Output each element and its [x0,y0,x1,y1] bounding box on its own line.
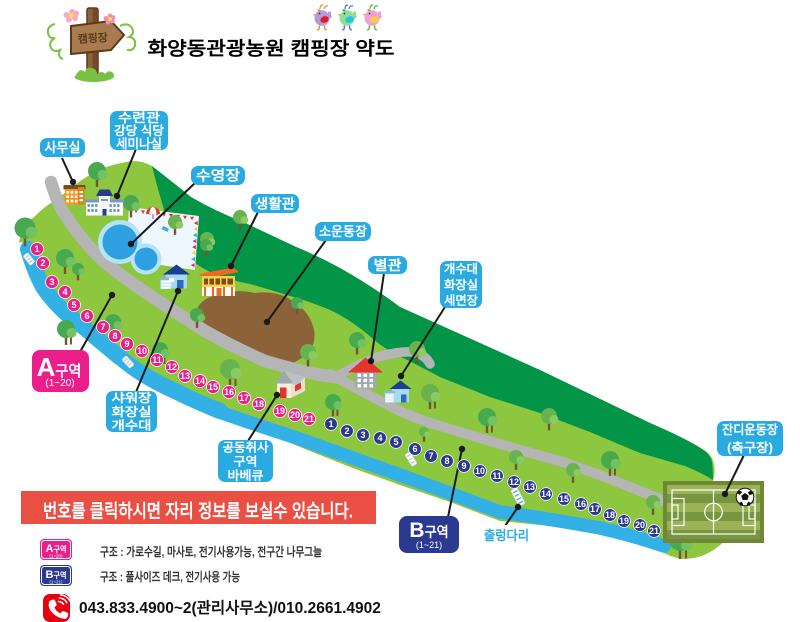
svg-text:(1~20): (1~20) [49,554,63,559]
svg-text:6: 6 [412,444,417,454]
svg-text:11: 11 [152,355,162,365]
svg-text:별관: 별관 [374,257,403,273]
svg-text:4: 4 [62,287,67,297]
svg-text:1: 1 [328,419,333,429]
svg-text:생활관: 생활관 [255,195,296,211]
svg-text:구역: 구역 [234,453,258,468]
svg-text:16: 16 [224,387,234,397]
svg-text:샤워장: 샤워장 [112,390,152,405]
svg-text:4: 4 [377,433,382,443]
svg-text:2: 2 [40,258,45,268]
svg-text:14: 14 [541,489,551,499]
svg-text:17: 17 [239,393,249,403]
svg-text:3: 3 [49,277,54,287]
svg-text:(1~20): (1~20) [45,378,74,389]
svg-text:출렁다리: 출렁다리 [484,528,529,543]
svg-text:화장실: 화장실 [444,277,478,292]
svg-text:12: 12 [509,477,519,487]
svg-text:번호를 클릭하시면 자리 정보를 보실수 있습니다.: 번호를 클릭하시면 자리 정보를 보실수 있습니다. [43,501,353,522]
svg-text:21: 21 [649,526,659,536]
svg-text:8: 8 [112,331,117,341]
svg-text:9: 9 [461,461,466,471]
svg-text:20: 20 [290,410,300,420]
svg-text:세미나실: 세미나실 [116,136,162,151]
svg-text:8: 8 [444,456,449,466]
svg-text:19: 19 [619,516,629,526]
svg-text:공동취사: 공동취사 [223,439,269,454]
svg-text:바베큐: 바베큐 [228,467,264,482]
svg-text:12: 12 [167,362,177,372]
svg-text:개수대: 개수대 [444,262,478,276]
svg-text:7: 7 [100,322,105,332]
svg-text:수영장: 수영장 [196,168,240,184]
svg-text:개수대: 개수대 [112,419,152,433]
svg-text:화양동관광농원 캠핑장 약도: 화양동관광농원 캠핑장 약도 [148,38,395,59]
svg-text:(1~21): (1~21) [416,540,442,550]
svg-text:6: 6 [84,311,89,321]
svg-text:수련관: 수련관 [118,110,161,125]
svg-text:10: 10 [475,466,485,476]
svg-text:사무실: 사무실 [45,140,81,155]
svg-text:10: 10 [137,346,147,356]
svg-text:화장실: 화장실 [112,404,152,419]
svg-text:5: 5 [71,300,76,310]
svg-text:3: 3 [360,430,365,440]
svg-text:16: 16 [576,499,586,509]
svg-text:14: 14 [195,376,205,386]
svg-text:19: 19 [275,406,285,416]
svg-text:18: 18 [605,510,615,520]
svg-text:강당 식당: 강당 식당 [114,123,164,138]
svg-text:잔디운동장: 잔디운동장 [722,422,778,437]
svg-text:세면장: 세면장 [444,293,478,308]
svg-text:15: 15 [208,382,218,392]
svg-text:5: 5 [393,437,398,447]
svg-text:7: 7 [428,451,433,461]
svg-text:11: 11 [492,471,502,481]
svg-text:(축구장): (축구장) [727,440,773,455]
svg-text:15: 15 [559,494,569,504]
svg-text:13: 13 [525,482,535,492]
svg-text:구조 : 풀사이즈 데크, 전기사용 가능: 구조 : 풀사이즈 데크, 전기사용 가능 [100,569,240,584]
svg-text:소운동장: 소운동장 [319,224,367,239]
svg-text:(1~21): (1~21) [49,580,63,585]
svg-text:13: 13 [180,371,190,381]
svg-text:2: 2 [344,426,349,436]
svg-text:18: 18 [254,399,264,409]
svg-text:21: 21 [304,414,314,424]
svg-text:043.833.4900~2(관리사무소)/010.2661: 043.833.4900~2(관리사무소)/010.2661.4902 [79,599,381,617]
svg-text:9: 9 [124,339,129,349]
svg-text:구조 : 가로수길, 마사토, 전기사용가능, 전구간 나무: 구조 : 가로수길, 마사토, 전기사용가능, 전구간 나무그늘 [100,544,322,559]
svg-text:20: 20 [635,520,645,530]
svg-text:1: 1 [34,244,39,254]
svg-text:17: 17 [590,504,600,514]
